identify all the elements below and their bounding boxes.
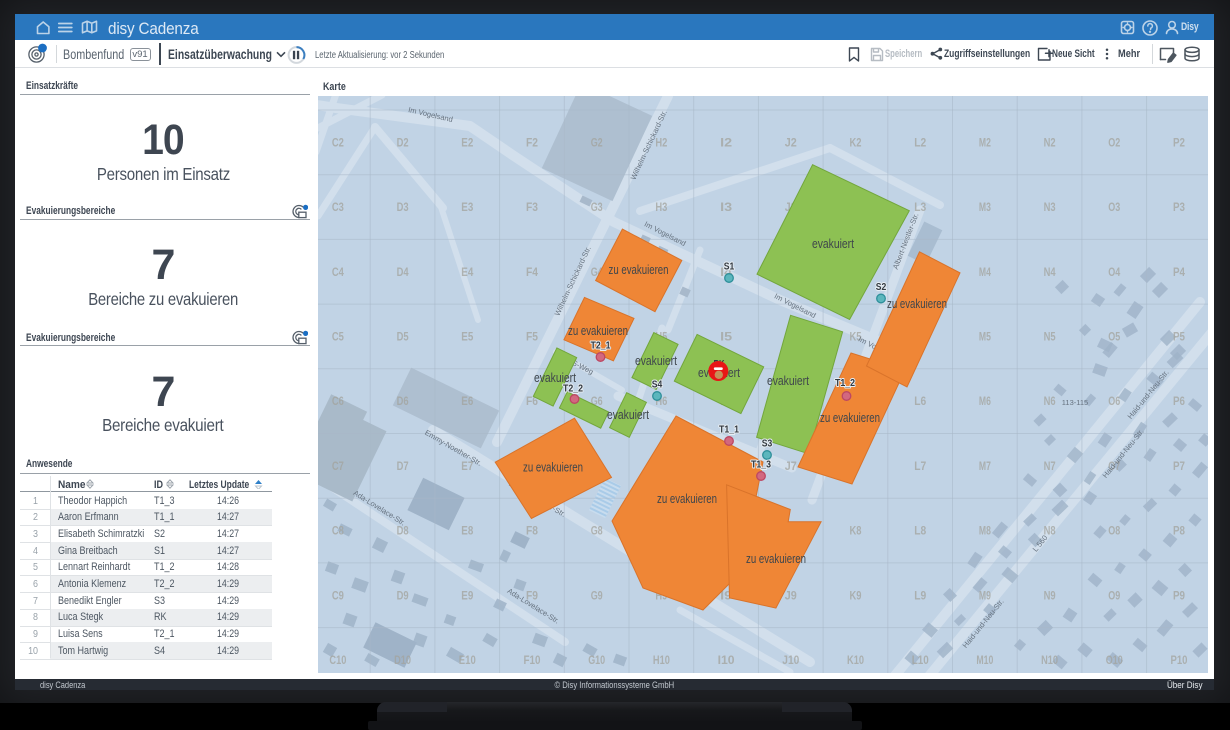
svg-text:J7: J7 [785, 461, 797, 473]
svg-text:O3: O3 [1108, 202, 1120, 214]
svg-text:L6: L6 [914, 396, 926, 408]
svg-text:E10: E10 [459, 655, 476, 667]
svg-text:J2: J2 [785, 137, 797, 149]
svg-text:O4: O4 [1108, 267, 1120, 279]
svg-text:S2: S2 [876, 281, 887, 293]
svg-text:J9: J9 [785, 590, 797, 602]
svg-text:P8: P8 [1173, 526, 1186, 538]
svg-text:S3: S3 [762, 438, 773, 450]
svg-text:N2: N2 [1044, 137, 1056, 149]
svg-text:I5: I5 [720, 332, 733, 344]
svg-text:E2: E2 [461, 137, 473, 149]
svg-text:G10: G10 [588, 655, 605, 667]
svg-text:M8: M8 [979, 526, 991, 538]
svg-text:N5: N5 [1044, 332, 1056, 344]
svg-text:E3: E3 [461, 202, 473, 214]
svg-text:evakuiert: evakuiert [635, 354, 677, 368]
svg-text:P3: P3 [1173, 202, 1185, 214]
svg-text:T1_2: T1_2 [835, 377, 855, 389]
svg-text:C8: C8 [332, 526, 344, 538]
svg-text:113-115: 113-115 [1062, 398, 1088, 407]
svg-text:F4: F4 [526, 267, 539, 279]
svg-text:J10: J10 [782, 655, 799, 667]
svg-text:F3: F3 [526, 202, 538, 214]
svg-text:N4: N4 [1044, 267, 1056, 279]
svg-text:O2: O2 [1108, 137, 1120, 149]
svg-text:L9: L9 [914, 590, 926, 602]
svg-text:F2: F2 [526, 137, 538, 149]
svg-text:N6: N6 [1044, 396, 1056, 408]
svg-text:I10: I10 [718, 655, 735, 667]
svg-text:K8: K8 [850, 526, 862, 538]
svg-text:D9: D9 [397, 590, 409, 602]
svg-text:zu evakuieren: zu evakuieren [568, 324, 628, 338]
svg-text:C7: C7 [332, 461, 344, 473]
svg-text:zu evakuieren: zu evakuieren [820, 411, 880, 425]
svg-text:P6: P6 [1173, 396, 1185, 408]
svg-text:D2: D2 [397, 137, 409, 149]
svg-text:zu evakuieren: zu evakuieren [746, 552, 806, 566]
svg-text:evakuiert: evakuiert [812, 237, 854, 251]
svg-text:H3: H3 [655, 202, 667, 214]
svg-text:G3: G3 [591, 202, 603, 214]
svg-text:C4: C4 [332, 267, 344, 279]
svg-text:F8: F8 [526, 526, 539, 538]
svg-text:F5: F5 [526, 332, 539, 344]
svg-text:S1: S1 [724, 261, 735, 273]
svg-text:G9: G9 [591, 590, 603, 602]
svg-text:H10: H10 [653, 655, 670, 667]
svg-text:M2: M2 [979, 137, 991, 149]
svg-text:O6: O6 [1108, 396, 1120, 408]
svg-text:M7: M7 [979, 461, 991, 473]
svg-text:zu evakuieren: zu evakuieren [657, 492, 717, 506]
svg-text:evakuiert: evakuiert [767, 374, 809, 388]
svg-text:P10: P10 [1171, 655, 1188, 667]
svg-text:I3: I3 [720, 202, 732, 214]
svg-text:I2: I2 [720, 137, 732, 149]
svg-text:L8: L8 [914, 526, 927, 538]
svg-text:E5: E5 [461, 332, 474, 344]
svg-text:M6: M6 [979, 396, 991, 408]
svg-text:D5: D5 [397, 332, 409, 344]
svg-text:E6: E6 [461, 396, 473, 408]
svg-text:O8: O8 [1108, 526, 1120, 538]
svg-text:P4: P4 [1173, 267, 1186, 279]
svg-text:M9: M9 [979, 590, 991, 602]
svg-text:N10: N10 [1041, 655, 1058, 667]
svg-text:T1_3: T1_3 [751, 459, 771, 471]
svg-text:D6: D6 [397, 396, 409, 408]
svg-text:C10: C10 [329, 655, 346, 667]
svg-text:P2: P2 [1173, 137, 1185, 149]
svg-text:T2_1: T2_1 [591, 340, 611, 352]
svg-text:D8: D8 [397, 526, 409, 538]
svg-text:C6: C6 [332, 396, 344, 408]
svg-text:G8: G8 [591, 526, 603, 538]
svg-text:L7: L7 [914, 461, 926, 473]
svg-text:N8: N8 [1044, 526, 1056, 538]
svg-text:L2: L2 [914, 137, 926, 149]
svg-text:H2: H2 [655, 137, 667, 149]
svg-text:K2: K2 [850, 137, 862, 149]
svg-text:S4: S4 [652, 379, 663, 391]
svg-text:C9: C9 [332, 590, 344, 602]
svg-text:N7: N7 [1044, 461, 1056, 473]
svg-text:M10: M10 [976, 655, 993, 667]
svg-text:L10: L10 [912, 655, 929, 667]
svg-text:O5: O5 [1108, 332, 1120, 344]
svg-text:N9: N9 [1044, 590, 1056, 602]
svg-text:O10: O10 [1106, 655, 1123, 667]
svg-text:C3: C3 [332, 202, 344, 214]
svg-text:G2: G2 [591, 137, 603, 149]
svg-text:P7: P7 [1173, 461, 1185, 473]
svg-text:T1_1: T1_1 [719, 424, 739, 436]
svg-text:D4: D4 [397, 267, 409, 279]
svg-text:zu evakuieren: zu evakuieren [523, 461, 583, 475]
svg-text:zu evakuieren: zu evakuieren [887, 297, 947, 311]
svg-text:C5: C5 [332, 332, 344, 344]
svg-text:O9: O9 [1108, 590, 1120, 602]
svg-text:T2_2: T2_2 [563, 383, 583, 395]
svg-text:evakuiert: evakuiert [607, 408, 649, 422]
svg-text:zu evakuieren: zu evakuieren [609, 263, 669, 277]
svg-text:D10: D10 [394, 655, 411, 667]
svg-text:E9: E9 [461, 590, 473, 602]
svg-text:C2: C2 [332, 137, 344, 149]
svg-text:P9: P9 [1173, 590, 1185, 602]
svg-text:M5: M5 [979, 332, 991, 344]
svg-text:K10: K10 [847, 655, 864, 667]
svg-text:L3: L3 [914, 202, 926, 214]
svg-text:E8: E8 [461, 526, 474, 538]
svg-text:P5: P5 [1173, 332, 1186, 344]
svg-text:E4: E4 [461, 267, 474, 279]
svg-text:D7: D7 [397, 461, 409, 473]
svg-text:F10: F10 [524, 655, 541, 667]
svg-text:M3: M3 [979, 202, 991, 214]
svg-text:M4: M4 [979, 267, 991, 279]
svg-text:D3: D3 [397, 202, 409, 214]
svg-text:K9: K9 [850, 590, 862, 602]
svg-text:N3: N3 [1044, 202, 1056, 214]
